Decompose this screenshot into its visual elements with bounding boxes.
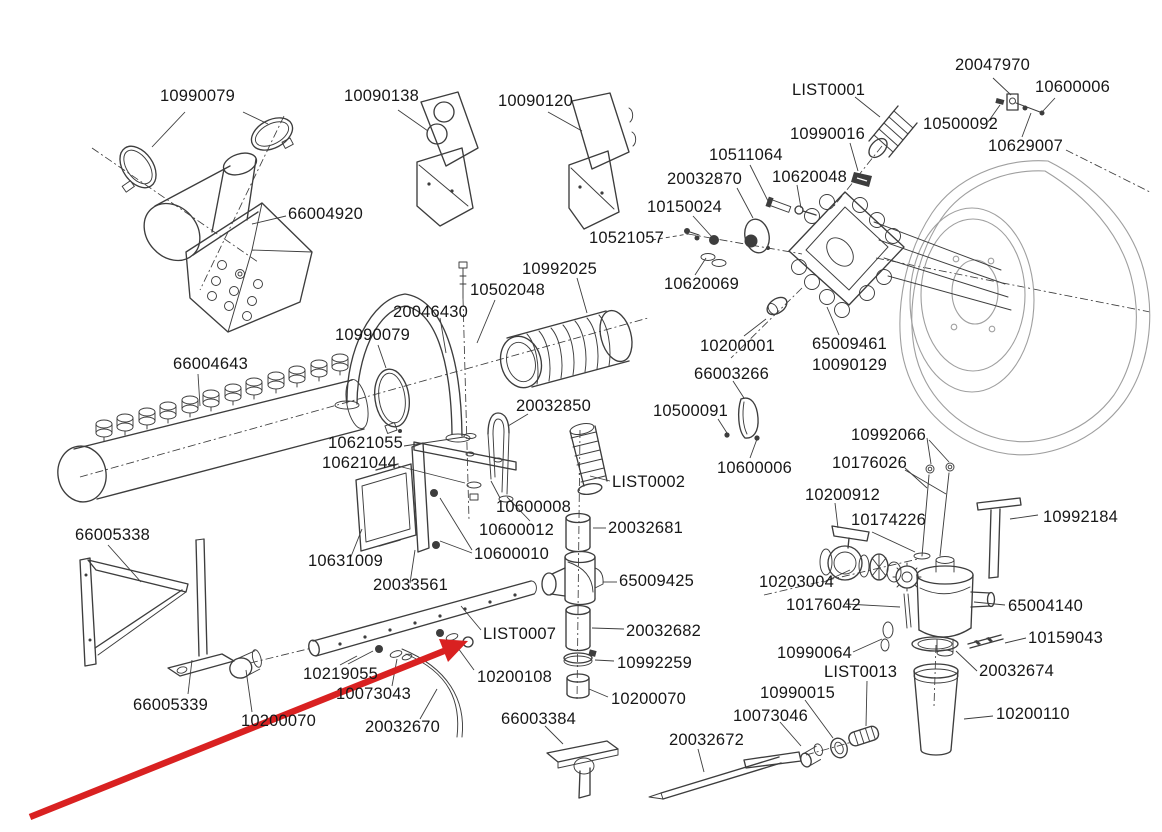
part-label: 66003384 xyxy=(501,711,576,728)
part-label: 10174226 xyxy=(851,512,926,529)
part-label: 10159043 xyxy=(1028,630,1103,647)
part-label: 10150024 xyxy=(647,199,722,216)
part-label: 20046430 xyxy=(393,304,468,321)
part-label: 10990016 xyxy=(790,126,865,143)
part-label: 66005339 xyxy=(133,697,208,714)
part-label: 20047970 xyxy=(955,57,1030,74)
part-label: 66004643 xyxy=(173,356,248,373)
part-label: 10600008 xyxy=(496,499,571,516)
part-label: 10600006 xyxy=(717,460,792,477)
part-label: 10990079 xyxy=(160,88,235,105)
part-labels-layer: 10990079100901381009012066004920LIST0001… xyxy=(0,0,1162,832)
part-label: 10629007 xyxy=(988,138,1063,155)
part-label: 20032870 xyxy=(667,171,742,188)
part-label: 10073043 xyxy=(336,686,411,703)
part-label: 10073046 xyxy=(733,708,808,725)
part-label: 10203004 xyxy=(759,574,834,591)
part-label: LIST0013 xyxy=(824,664,897,681)
part-label: 10090129 xyxy=(812,357,887,374)
part-label: 20032672 xyxy=(669,732,744,749)
part-label: LIST0001 xyxy=(792,82,865,99)
part-label: 10990064 xyxy=(777,645,852,662)
part-label: LIST0002 xyxy=(612,474,685,491)
part-label: 10176026 xyxy=(832,455,907,472)
part-label: 10620048 xyxy=(772,169,847,186)
part-label: 10090120 xyxy=(498,93,573,110)
part-label: 20033561 xyxy=(373,577,448,594)
part-label: 10090138 xyxy=(344,88,419,105)
part-label: 10200110 xyxy=(996,706,1070,723)
part-label: 10502048 xyxy=(470,282,545,299)
part-label: 10990015 xyxy=(760,685,835,702)
part-label: 65009461 xyxy=(812,336,887,353)
part-label: 10620069 xyxy=(664,276,739,293)
part-label: 10219055 xyxy=(303,666,378,683)
part-label: 20032682 xyxy=(626,623,701,640)
part-label: 20032674 xyxy=(979,663,1054,680)
part-label: 10621055 xyxy=(328,435,403,452)
part-label: 10992184 xyxy=(1043,509,1118,526)
part-label: 10511064 xyxy=(709,147,783,164)
part-label: 65009425 xyxy=(619,573,694,590)
part-label: 10631009 xyxy=(308,553,383,570)
part-label: 10992025 xyxy=(522,261,597,278)
part-label: 66005338 xyxy=(75,527,150,544)
part-label: 66003266 xyxy=(694,366,769,383)
part-label: 10992066 xyxy=(851,427,926,444)
part-label: 10500091 xyxy=(653,403,728,420)
part-label: 10990079 xyxy=(335,327,410,344)
part-label: 10521057 xyxy=(589,230,664,247)
part-label: 10200912 xyxy=(805,487,880,504)
part-label: 10200070 xyxy=(241,713,316,730)
part-label: 10200108 xyxy=(477,669,552,686)
parts-diagram-page: 10990079100901381009012066004920LIST0001… xyxy=(0,0,1162,832)
part-label: 20032681 xyxy=(608,520,683,537)
part-label: 65004140 xyxy=(1008,598,1083,615)
part-label: 10600012 xyxy=(479,522,554,539)
part-label: 20032850 xyxy=(516,398,591,415)
part-label: LIST0007 xyxy=(483,626,556,643)
part-label: 10600010 xyxy=(474,546,549,563)
part-label: 10200001 xyxy=(700,338,775,355)
part-label: 10200070 xyxy=(611,691,686,708)
part-label: 10500092 xyxy=(923,116,998,133)
part-label: 10600006 xyxy=(1035,79,1110,96)
part-label: 20032670 xyxy=(365,719,440,736)
part-label: 10621044 xyxy=(322,455,397,472)
part-label: 66004920 xyxy=(288,206,363,223)
part-label: 10992259 xyxy=(617,655,692,672)
part-label: 10176042 xyxy=(786,597,861,614)
